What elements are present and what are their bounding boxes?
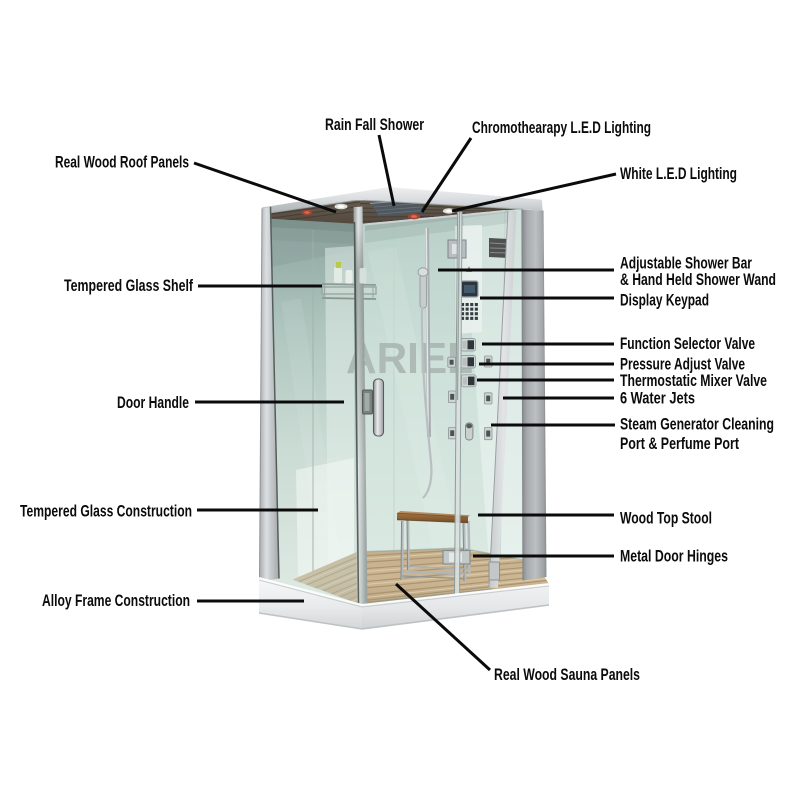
svg-text:Real Wood Sauna Panels: Real Wood Sauna Panels (494, 666, 640, 684)
svg-text:Real Wood Roof Panels: Real Wood Roof Panels (55, 154, 189, 172)
svg-text:Steam Generator Cleaning: Steam Generator Cleaning (620, 416, 774, 434)
svg-text:Port & Perfume Port: Port & Perfume Port (620, 435, 739, 453)
svg-text:Tempered Glass Construction: Tempered Glass Construction (20, 503, 192, 521)
svg-text:White L.E.D Lighting: White L.E.D Lighting (620, 165, 737, 183)
svg-text:Wood Top Stool: Wood Top Stool (620, 510, 712, 528)
svg-text:Display Keypad: Display Keypad (620, 292, 709, 310)
svg-text:Tempered Glass Shelf: Tempered Glass Shelf (64, 277, 193, 295)
svg-text:Door Handle: Door Handle (117, 394, 189, 412)
svg-text:Pressure Adjust Valve: Pressure Adjust Valve (620, 356, 745, 374)
svg-text:Adjustable Shower Bar: Adjustable Shower Bar (620, 255, 752, 273)
svg-text:Alloy Frame Construction: Alloy Frame Construction (42, 592, 190, 610)
svg-text:Function Selector Valve: Function Selector Valve (620, 335, 755, 353)
svg-text:Chromothearapy L.E.D Lighting: Chromothearapy L.E.D Lighting (472, 119, 651, 137)
svg-text:Thermostatic Mixer Valve: Thermostatic Mixer Valve (620, 372, 767, 390)
svg-text:6 Water Jets: 6 Water Jets (620, 390, 695, 408)
svg-text:& Hand Held Shower Wand: & Hand Held Shower Wand (620, 271, 776, 289)
svg-text:Metal Door Hinges: Metal Door Hinges (620, 548, 728, 566)
svg-text:Rain Fall Shower: Rain Fall Shower (325, 116, 424, 134)
